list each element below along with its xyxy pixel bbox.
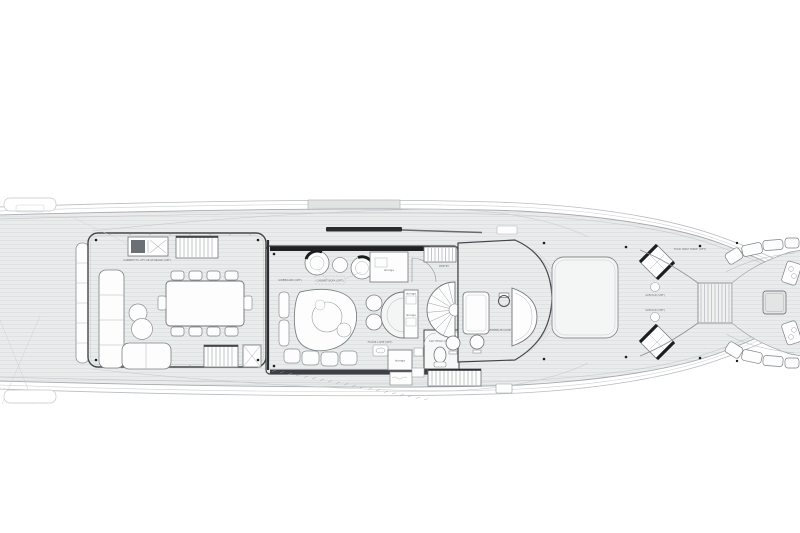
dining-table <box>158 281 252 326</box>
chart-console <box>463 292 489 334</box>
bow-table <box>763 291 786 314</box>
sideboard-label: SIDEBOARD (OPT) <box>278 278 301 282</box>
lounge-storage-cabinet: storage <box>370 252 408 282</box>
cabinet-tv-label: CABINET/TV LIFT OR STORAGE (OPT) <box>123 258 170 262</box>
lounge-storage-lower: storage <box>388 350 412 385</box>
fold-table-label: FOLD AWAY TABLE (OPT) <box>674 247 706 251</box>
bar-stool <box>366 295 382 311</box>
deck-plan-canvas: CABINET/TV LIFT OR STORAGE (OPT) <box>0 0 800 533</box>
deck-hatch <box>497 226 517 234</box>
storage-label: storage <box>406 292 416 296</box>
saloon-storage-cabinet <box>243 345 261 367</box>
side-deck-staircase <box>428 369 481 386</box>
lounge-front-glass-track <box>270 247 430 252</box>
saloon-staircase-down <box>204 345 238 367</box>
pop-up-light <box>651 283 660 292</box>
toilet <box>434 347 446 363</box>
floor-lamp <box>373 345 388 356</box>
wheelhouse: WHEELHOUSE <box>446 240 552 362</box>
deck-plan-drawing: CABINET/TV LIFT OR STORAGE (OPT) <box>0 0 800 533</box>
storage-label: storage <box>395 359 405 363</box>
side-table <box>333 258 348 273</box>
tv-cabinet <box>128 237 168 256</box>
wheelhouse-label: WHEELHOUSE <box>489 328 511 332</box>
floor-lamp-label: FLOOR LAMP (OPT) <box>368 340 393 344</box>
pantry-label: PANTRY <box>439 264 449 268</box>
pantry-staircase <box>424 247 456 262</box>
deck-locker <box>412 368 424 377</box>
aft-bench <box>76 243 89 363</box>
foredeck-sun-pad <box>552 257 618 338</box>
deck-locker <box>496 384 512 393</box>
storage-label: storage <box>406 313 416 317</box>
sun-pad-label: SUN PAD (OPT) <box>645 308 665 312</box>
bar-stool <box>366 314 382 330</box>
pop-up-light <box>651 313 660 322</box>
storage-label: storage <box>384 268 394 272</box>
sun-pad-label: SUN PAD (OPT) <box>645 293 665 297</box>
cabinet-sofa-label: CABINET/SOFA (OPT) <box>317 279 344 283</box>
swivel-armchair <box>305 251 329 275</box>
bow-steps <box>698 283 732 323</box>
bow-cockpit <box>724 238 800 368</box>
saloon-staircase-up <box>176 236 218 258</box>
saloon: CABINET/TV LIFT OR STORAGE (OPT) <box>70 216 266 369</box>
